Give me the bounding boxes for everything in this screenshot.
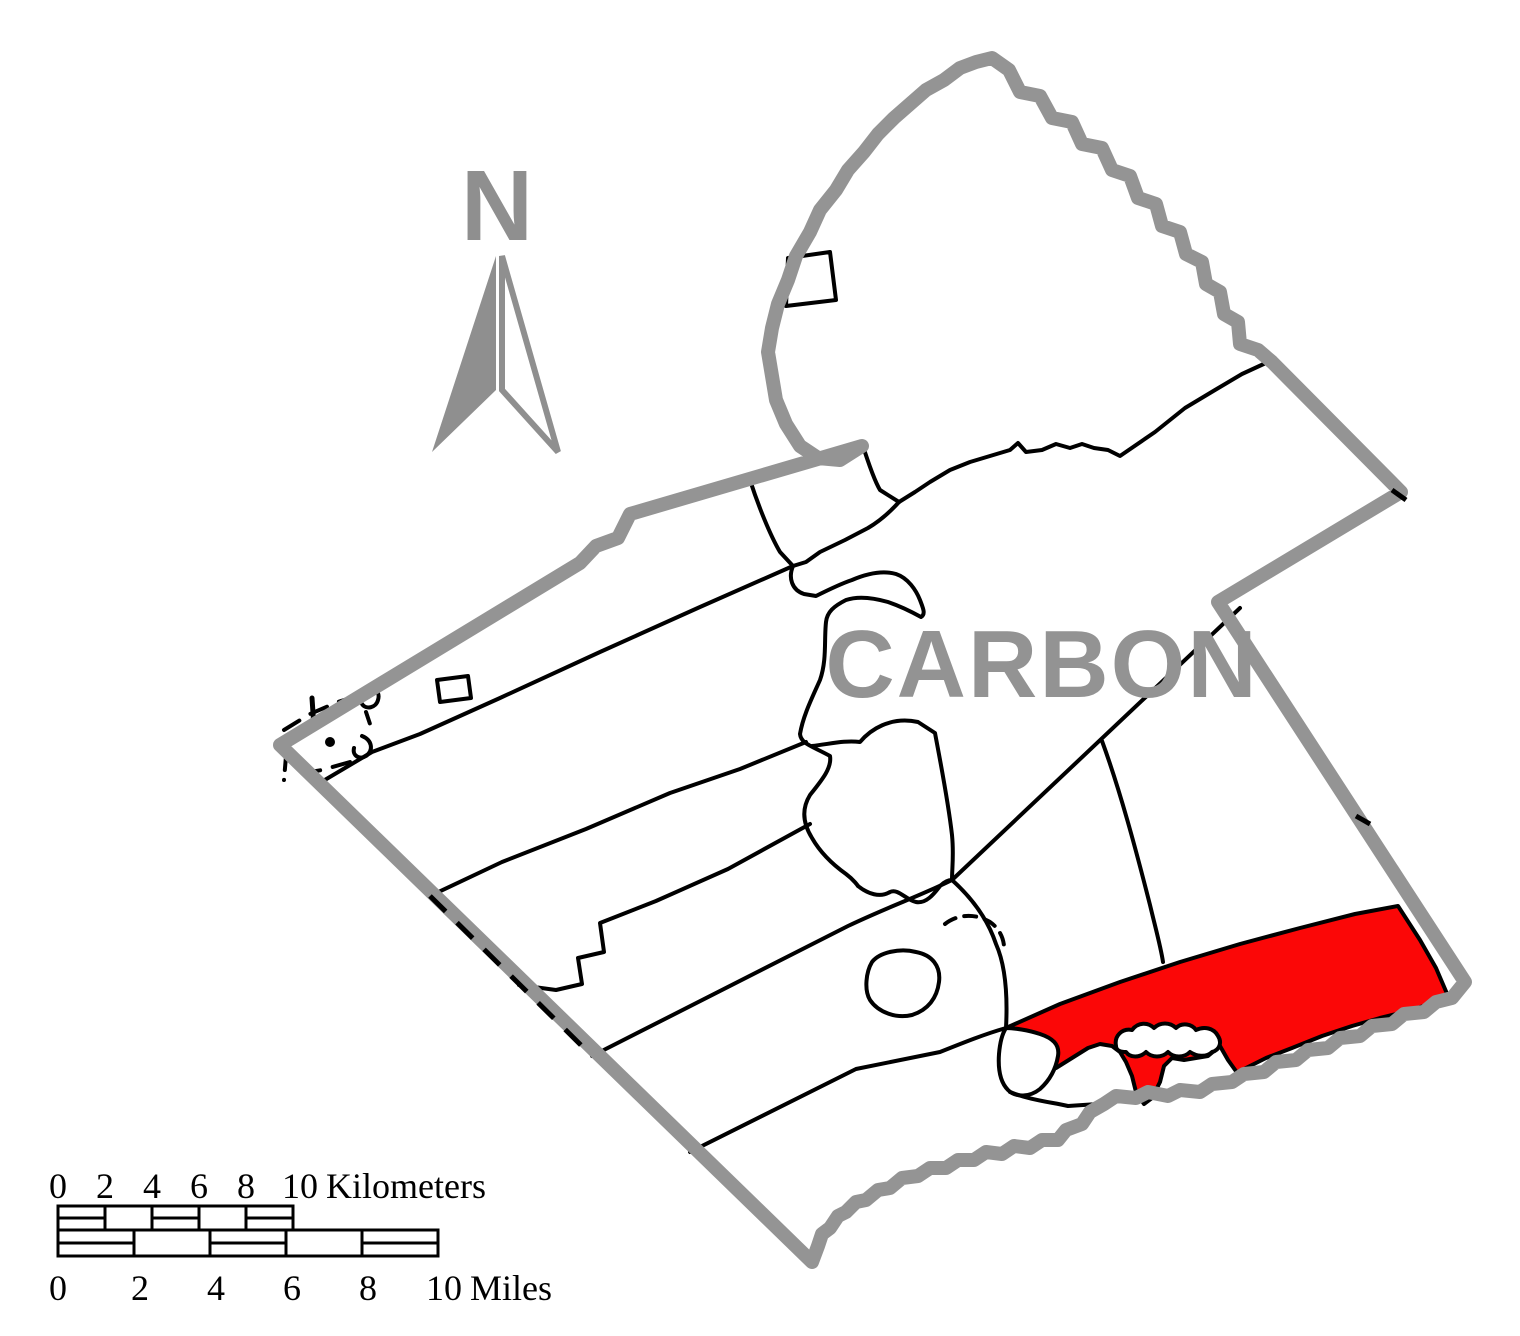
boundary-south-to-red-tip — [690, 1028, 1006, 1152]
km-tick-label: 8 — [237, 1166, 255, 1206]
county-name-label: CARBON — [825, 611, 1258, 718]
north-arrow-right-half — [502, 256, 558, 452]
dashed-segment-2 — [366, 712, 372, 730]
boundary-nesquehoning-stub — [750, 480, 793, 566]
miles-tick-label: 6 — [283, 1268, 301, 1308]
north-arrow-left-half — [432, 256, 496, 452]
miles-tick-label: 4 — [207, 1268, 225, 1308]
km-unit-label: Kilometers — [326, 1166, 486, 1206]
borough-rect-beaver-meadows — [437, 676, 471, 702]
miles-tick-label: 8 — [359, 1268, 377, 1308]
boundary-strip-b2 — [519, 824, 810, 990]
borough-cutout-west — [999, 1028, 1059, 1096]
dash-dot — [327, 739, 333, 745]
boundary-towamensing-divider — [1102, 741, 1163, 962]
boundary-river-to-junction — [812, 721, 953, 880]
km-tick-label: 4 — [143, 1166, 161, 1206]
scale-bar-kilometers — [58, 1206, 293, 1230]
highlighted-township — [999, 906, 1448, 1104]
north-arrow: N — [432, 150, 558, 452]
miles-tick-label: 10 — [426, 1268, 462, 1308]
km-tick-label: 10 — [282, 1166, 318, 1206]
km-tick-label: 0 — [49, 1166, 67, 1206]
north-arrow-label: N — [461, 150, 533, 262]
boundary-kidder-south — [899, 362, 1268, 502]
boundary-strip-b — [430, 742, 806, 896]
borough-blob — [866, 950, 939, 1016]
dash-hook — [354, 736, 371, 758]
boundary-north-stub — [862, 443, 899, 502]
borough-cutout-caterpillar — [1116, 1024, 1220, 1057]
scale-bar-miles — [58, 1230, 438, 1256]
boundary-junction-to-red-tip — [952, 880, 1007, 1028]
map-canvas: CARBON N 0 — [0, 0, 1520, 1336]
miles-tick-label: 2 — [131, 1268, 149, 1308]
boundary-cluster-wavy — [858, 880, 952, 902]
miles-tick-label: 0 — [49, 1268, 67, 1308]
scale-bar — [58, 1206, 438, 1256]
km-tick-label: 2 — [96, 1166, 114, 1206]
highlighted-township-shape — [1006, 906, 1448, 1104]
boundary-junction-west — [793, 502, 899, 566]
county-map-svg: CARBON N 0 — [0, 0, 1520, 1336]
km-tick-label: 6 — [190, 1166, 208, 1206]
miles-unit-label: Miles — [470, 1268, 552, 1308]
